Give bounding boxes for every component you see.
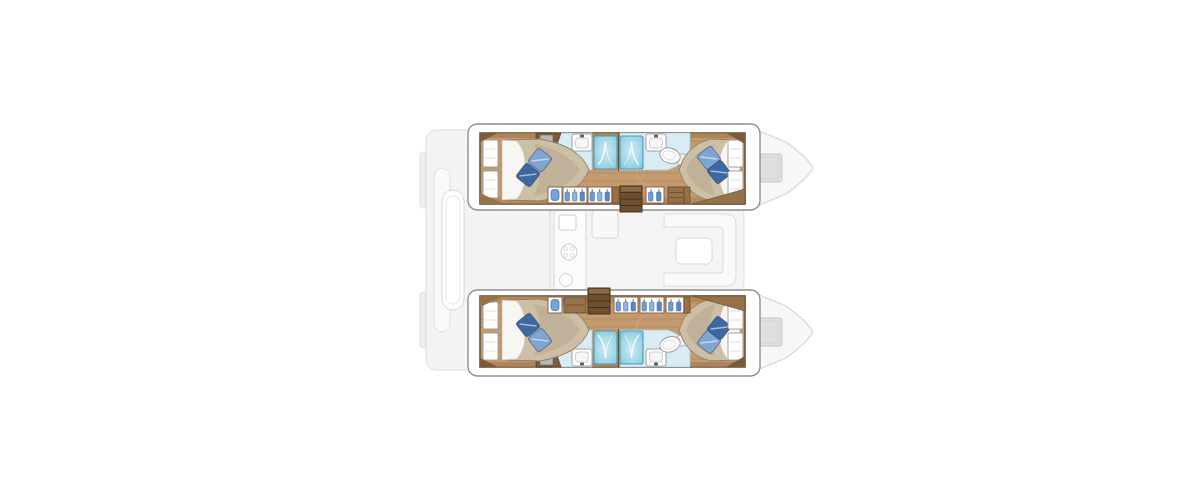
locker-shelf [684,187,690,203]
drawer-unit [668,187,684,203]
floorplan-canvas [0,0,1200,500]
bow-deck-lower [752,292,813,372]
galley-sink [559,215,576,230]
hanging-locker [588,187,612,203]
galley-island [592,210,618,238]
hanging-locker [563,187,587,203]
locker-shelf [684,297,690,313]
cockpit-table [442,190,464,310]
catamaran-floorplan [0,0,1200,500]
saloon-galley [550,206,744,294]
galley-basin [560,274,573,287]
hanging-locker [666,297,684,313]
companionway-stairs [620,186,642,212]
bow-deck-upper [752,128,813,208]
companionway-stairs [588,288,610,314]
washbasin-cabinet [548,297,562,313]
hanging-locker [646,187,664,203]
stove [561,244,577,260]
locker-shelf [612,187,619,203]
hanging-locker [640,297,664,313]
hanging-locker [614,297,638,313]
saloon-table [676,238,712,264]
washbasin-cabinet [548,187,562,203]
